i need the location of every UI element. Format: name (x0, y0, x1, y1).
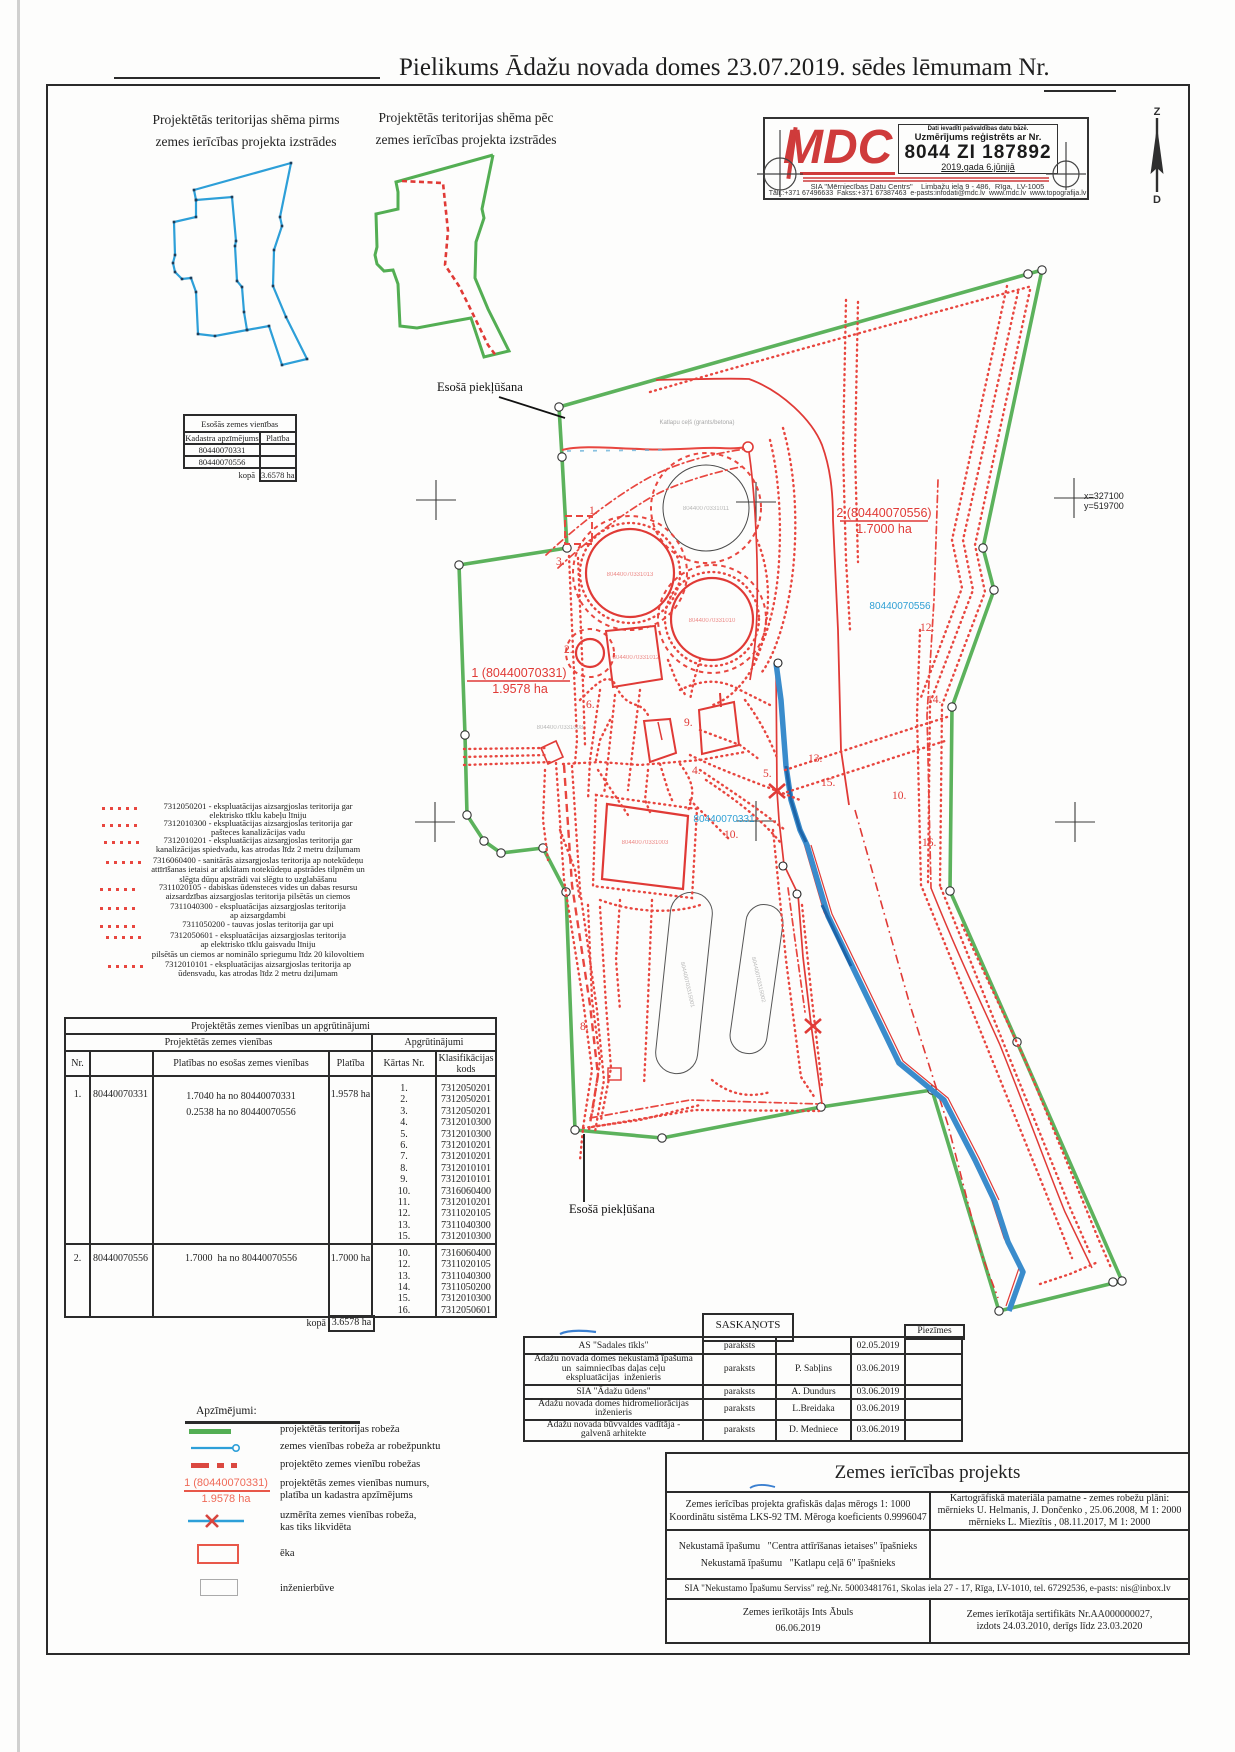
svg-text:13.: 13. (808, 753, 823, 765)
svg-text:80440070331S002: 80440070331S002 (750, 956, 766, 1003)
svg-text:3.: 3. (556, 556, 565, 568)
svg-text:6.: 6. (586, 699, 595, 711)
svg-text:80440070331S001: 80440070331S001 (679, 961, 695, 1008)
svg-text:1.: 1. (589, 505, 598, 517)
svg-text:D: D (1153, 194, 1161, 206)
svg-text:80440070331010: 80440070331010 (689, 618, 736, 624)
svg-text:Z: Z (1154, 106, 1161, 118)
svg-text:80440070331011: 80440070331011 (683, 506, 730, 512)
svg-text:1 (80440070331): 1 (80440070331) (471, 666, 566, 680)
svg-text:9.: 9. (684, 717, 693, 729)
svg-text:80440070331012: 80440070331012 (613, 655, 660, 661)
svg-text:Esošā piekļūšana: Esošā piekļūšana (437, 380, 523, 394)
svg-text:y=519700: y=519700 (1084, 501, 1124, 511)
svg-text:Katlapu ceļš (grants/betona): Katlapu ceļš (grants/betona) (659, 420, 734, 426)
svg-text:8.: 8. (580, 1021, 589, 1033)
svg-text:10.: 10. (892, 790, 907, 802)
svg-text:80440070331008: 80440070331008 (537, 725, 584, 731)
svg-text:80440070331: 80440070331 (693, 814, 755, 825)
svg-text:80440070331003: 80440070331003 (622, 840, 669, 846)
svg-text:2.: 2. (564, 644, 573, 656)
svg-text:x=327100: x=327100 (1084, 491, 1124, 501)
svg-text:80440070331013: 80440070331013 (607, 572, 654, 578)
svg-text:12.: 12. (920, 622, 935, 634)
svg-text:10.: 10. (724, 829, 739, 841)
svg-text:2 (80440070556): 2 (80440070556) (836, 506, 931, 520)
svg-text:Esošā piekļūšana: Esošā piekļūšana (569, 1202, 655, 1216)
svg-text:16.: 16. (922, 837, 937, 849)
svg-text:15.: 15. (821, 777, 836, 789)
svg-text:1.9578 ha: 1.9578 ha (492, 682, 548, 696)
svg-text:14.: 14. (927, 694, 942, 706)
svg-text:80440070556: 80440070556 (869, 601, 931, 612)
svg-text:4.: 4. (692, 765, 701, 777)
svg-text:1.7000 ha: 1.7000 ha (856, 522, 912, 536)
svg-text:5.: 5. (763, 768, 772, 780)
svg-text:7.: 7. (668, 591, 677, 603)
